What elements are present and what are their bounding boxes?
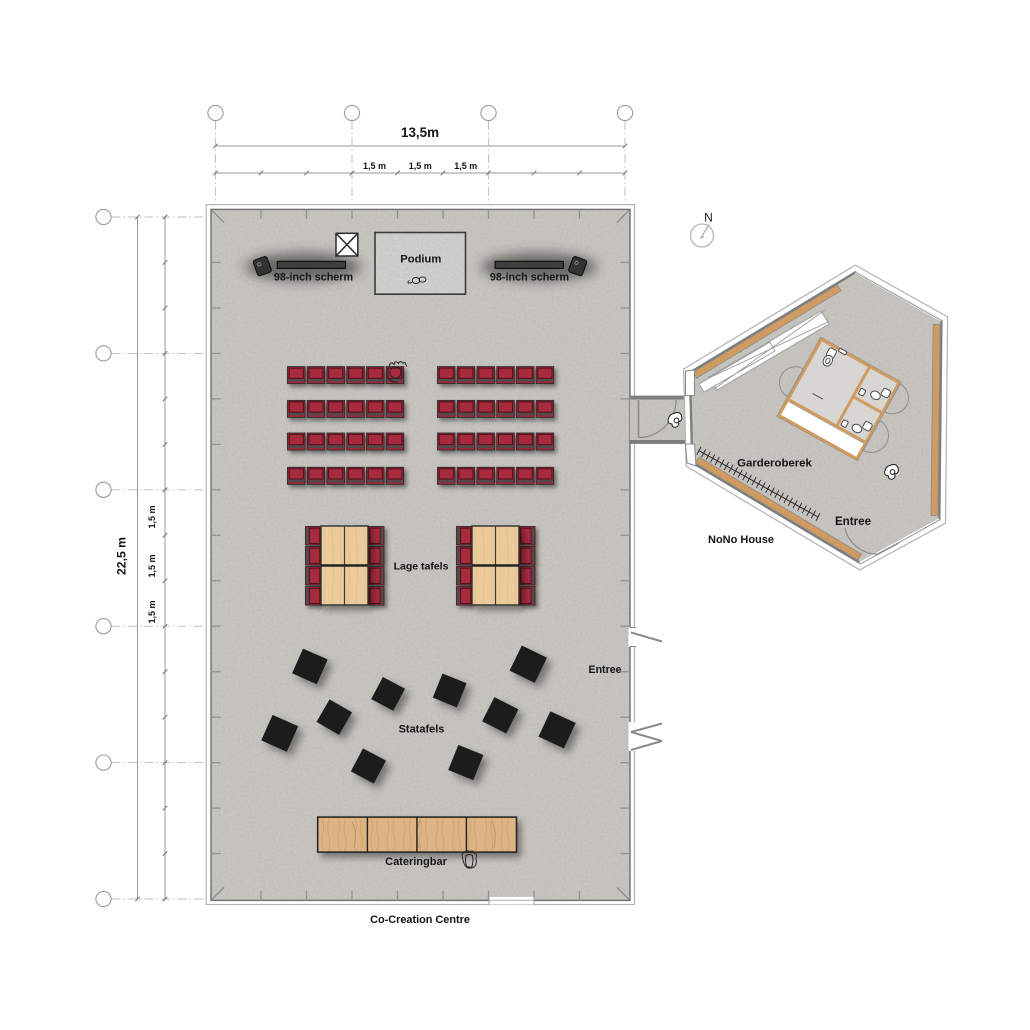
svg-text:1,5 m: 1,5 m [454, 161, 477, 171]
svg-text:1,5 m: 1,5 m [147, 600, 157, 623]
svg-text:98-inch scherm: 98-inch scherm [490, 272, 569, 284]
svg-text:Podium: Podium [400, 254, 441, 266]
svg-text:22,5 m: 22,5 m [115, 537, 129, 575]
svg-text:1,5 m: 1,5 m [147, 505, 157, 528]
svg-text:NoNo House: NoNo House [708, 534, 774, 546]
svg-text:Garderoberek: Garderoberek [737, 458, 812, 470]
svg-text:1,5 m: 1,5 m [363, 161, 386, 171]
svg-text:Cateringbar: Cateringbar [385, 856, 447, 868]
svg-text:Entree: Entree [589, 664, 622, 676]
svg-text:Statafels: Statafels [399, 724, 445, 736]
svg-text:N: N [704, 211, 713, 225]
svg-text:98-inch scherm: 98-inch scherm [274, 272, 353, 284]
svg-text:1,5 m: 1,5 m [409, 161, 432, 171]
svg-text:Entree: Entree [835, 515, 872, 528]
svg-text:1,5 m: 1,5 m [147, 554, 157, 577]
svg-text:Co-Creation Centre: Co-Creation Centre [370, 914, 470, 926]
svg-text:Lage tafels: Lage tafels [394, 561, 449, 573]
svg-text:13,5m: 13,5m [401, 125, 439, 140]
